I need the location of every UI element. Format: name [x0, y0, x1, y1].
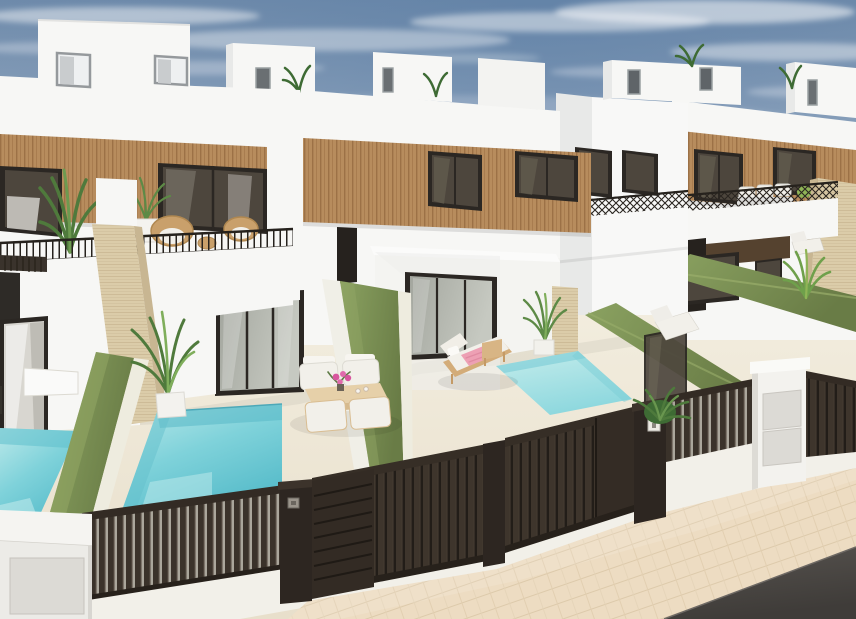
bulkhead-window: [57, 53, 90, 87]
gate-solid-leaf: [596, 408, 637, 521]
render-canvas: [0, 0, 856, 619]
dining-chair: [305, 399, 347, 432]
render-viewport: Row of modern white two-storey townhouse…: [0, 0, 856, 619]
pergola-far-left: [0, 255, 47, 272]
planter-bench: [24, 368, 78, 396]
rooftop-bulkhead-3: [478, 58, 545, 110]
dining-chair: [342, 359, 380, 386]
dining-chair: [349, 396, 391, 429]
utility-cabinet: [0, 510, 92, 619]
bulkhead-window: [700, 68, 712, 90]
gate-post-keypad: [278, 479, 314, 604]
plant-pot: [156, 392, 186, 418]
rooftop-bulkhead-far-right: [780, 62, 856, 118]
rooftop-bulkhead-2: [373, 52, 452, 102]
bulkhead-window: [155, 56, 187, 85]
meter-door: [763, 428, 801, 466]
meter-door: [763, 390, 801, 430]
bulkhead-window: [808, 80, 817, 105]
cabinet-door: [10, 558, 84, 614]
cup: [364, 387, 369, 392]
gate-post: [483, 440, 505, 567]
entry-recess-center: [337, 227, 357, 284]
bulkhead-window: [256, 68, 270, 92]
window-center-1: [428, 151, 482, 211]
plant-pot: [534, 340, 554, 355]
cup: [356, 389, 361, 394]
slat-fence-4: [806, 371, 856, 457]
bulkhead-window: [628, 70, 640, 94]
meter-pillar: [750, 357, 810, 490]
window-center-2: [515, 151, 578, 202]
bulkhead-window: [383, 68, 393, 92]
rooftop-bulkhead-left: [38, 20, 190, 89]
